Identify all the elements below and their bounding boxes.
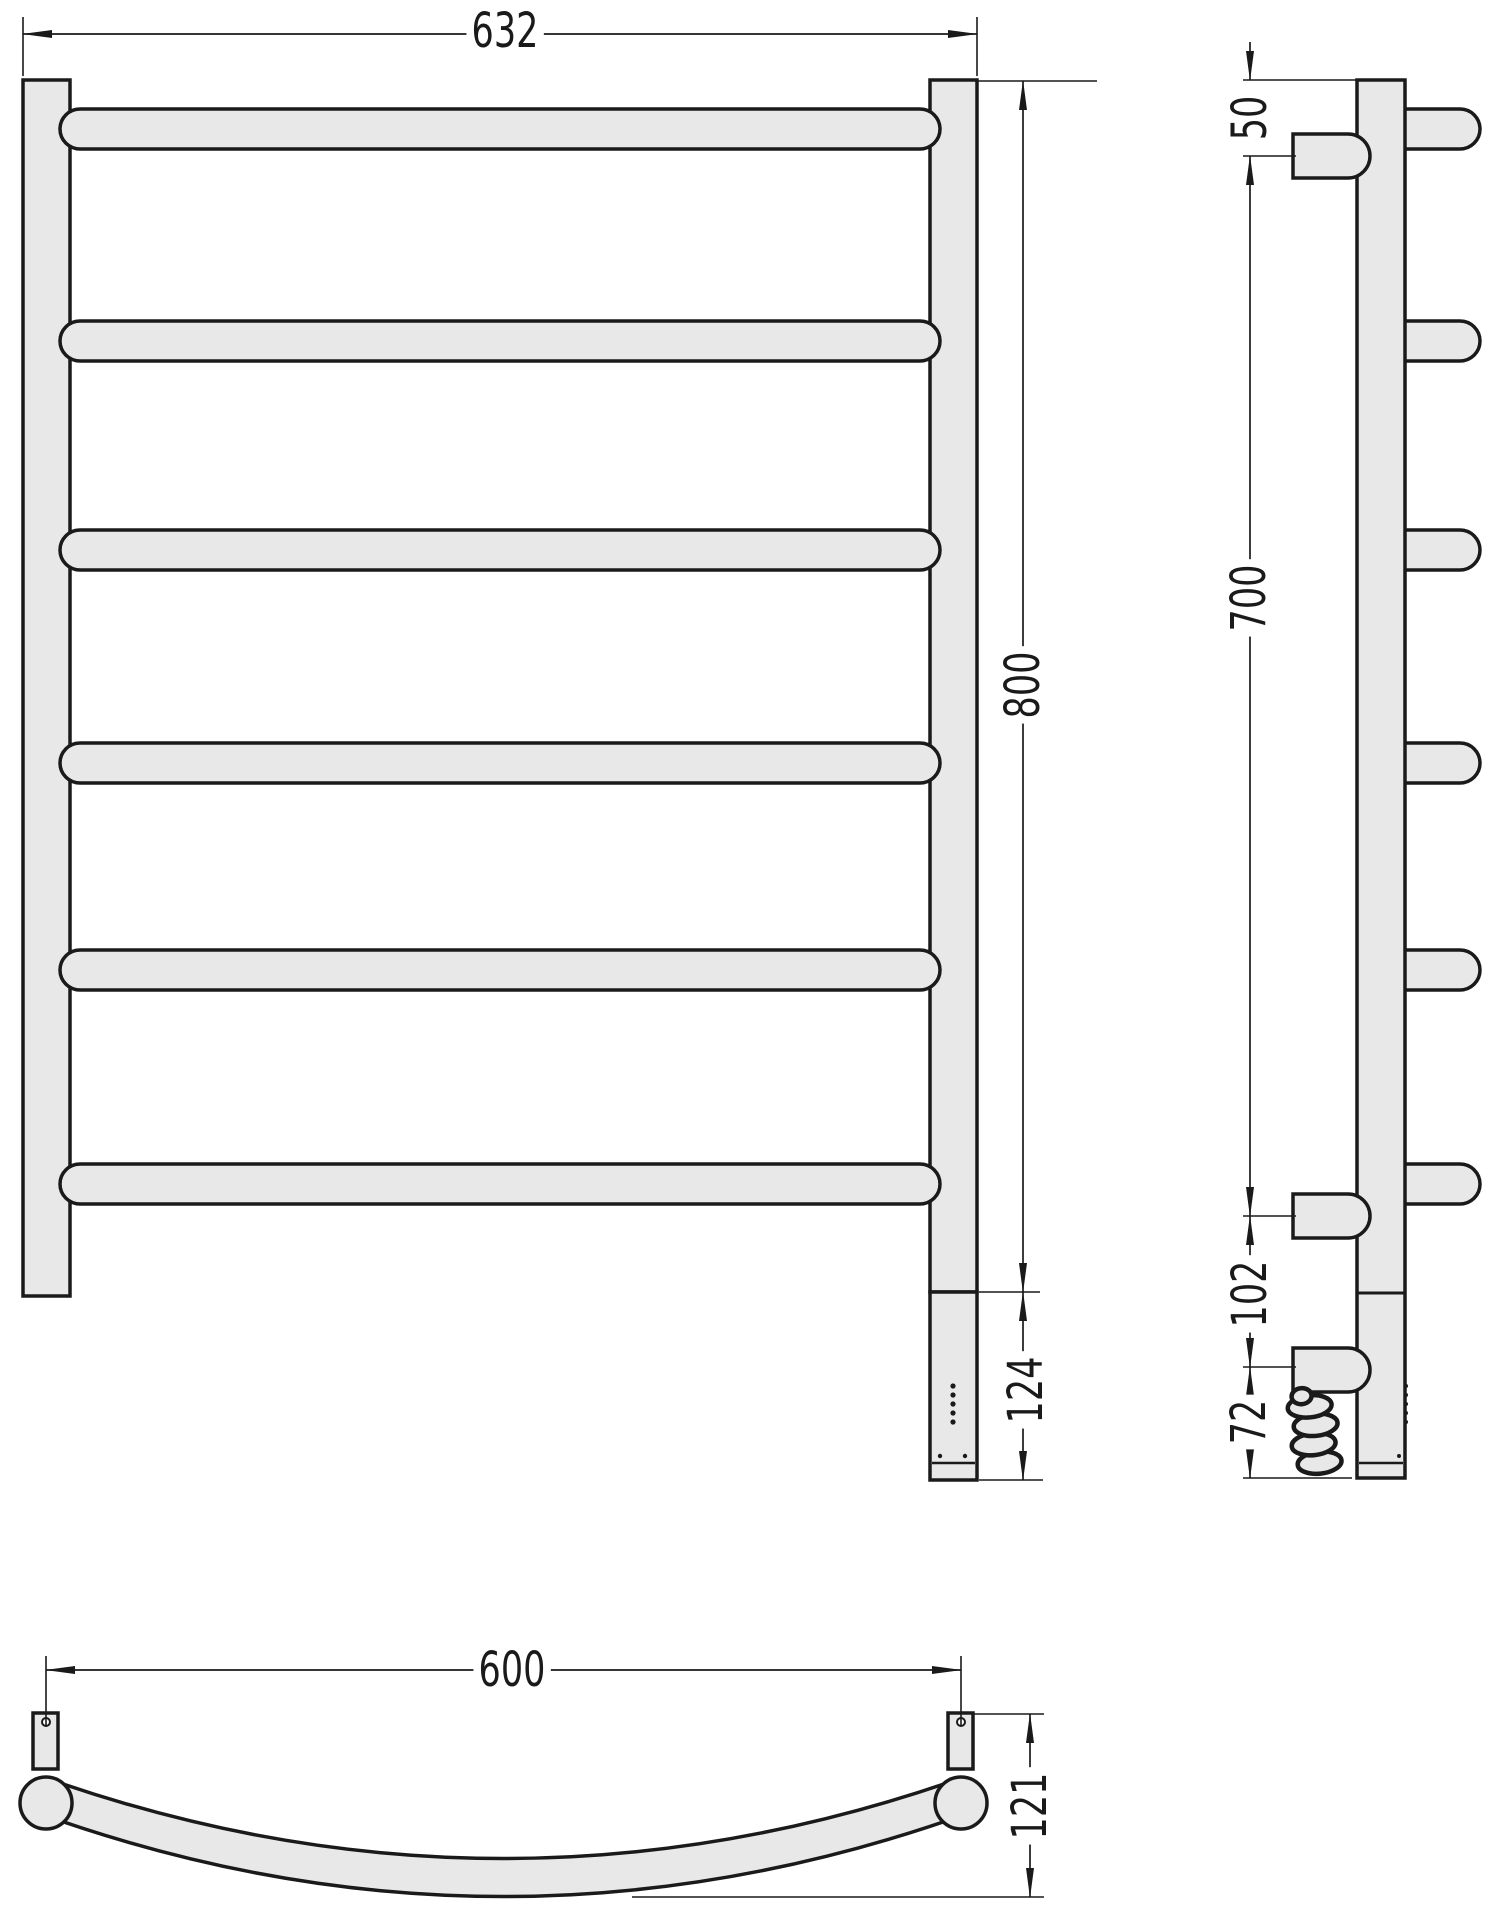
dim-label-front-width: 632 — [466, 5, 543, 57]
side-rung-end-2 — [1400, 321, 1480, 361]
plan-post-left — [20, 1777, 72, 1829]
dim-label-bottom-offset: 72 — [1223, 1395, 1275, 1450]
side-rung-end-1 — [1400, 109, 1480, 149]
dim-label-front-height: 800 — [997, 646, 1049, 723]
dim-label-plan-depth: 121 — [1004, 1767, 1056, 1844]
power-cord-coil — [1286, 1385, 1343, 1477]
housing-screw-right — [963, 1454, 967, 1458]
side-rung-end-6 — [1400, 1164, 1480, 1204]
side-boss-top — [1293, 134, 1370, 178]
front-rung-1 — [60, 109, 940, 149]
drawing-canvas: 632 800 124 50 700 102 72 600 121 — [0, 0, 1499, 1920]
front-right-post — [930, 80, 977, 1292]
plan-post-right — [935, 1777, 987, 1829]
housing-screw-left — [938, 1454, 942, 1458]
dim-label-lower-gap: 102 — [1224, 1255, 1276, 1332]
front-rung-3 — [60, 530, 940, 570]
side-power-boss — [1293, 1348, 1370, 1392]
side-screw-dot — [1397, 1454, 1401, 1458]
front-left-post — [23, 80, 70, 1296]
side-post — [1357, 80, 1405, 1478]
side-rung-end-5 — [1400, 950, 1480, 990]
front-rung-6 — [60, 1164, 940, 1204]
plan-view — [20, 1713, 987, 1897]
side-view — [1286, 80, 1480, 1478]
front-rung-2 — [60, 321, 940, 361]
dim-label-plan-width: 600 — [473, 1644, 550, 1696]
side-rung-end-4 — [1400, 743, 1480, 783]
plan-curved-rail — [38, 1783, 969, 1897]
side-boss-lower — [1293, 1194, 1370, 1238]
front-rung-5 — [60, 950, 940, 990]
towel-rail-drawing — [0, 0, 1499, 1920]
front-rung-4 — [60, 743, 940, 783]
side-rung-end-3 — [1400, 530, 1480, 570]
dim-label-rail-span: 700 — [1223, 559, 1275, 636]
front-view — [23, 80, 977, 1480]
dim-label-bottom-section: 124 — [1000, 1351, 1052, 1428]
dim-label-top-offset: 50 — [1224, 91, 1276, 146]
